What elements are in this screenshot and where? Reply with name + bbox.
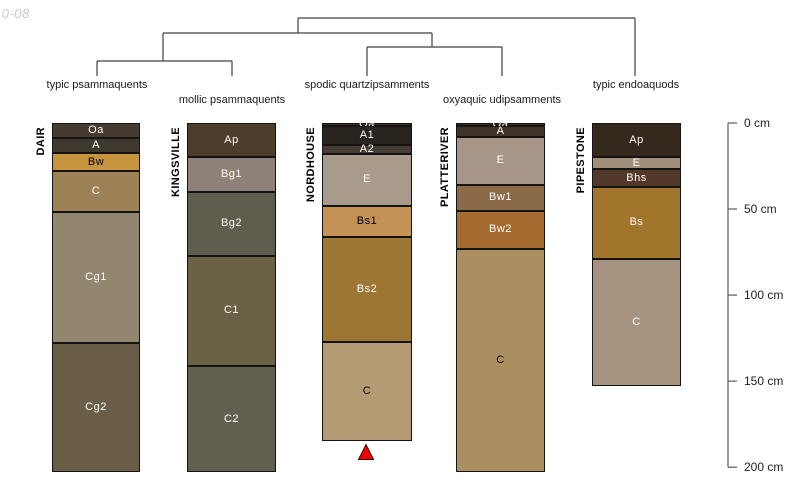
horizon-band-oa: Oa [52,123,140,138]
horizon-band-bs: Bs [592,187,681,259]
horizon-band-cg1: Cg1 [52,212,140,343]
classification-label: typic psammaquents [47,80,148,91]
horizon-label: C2 [224,414,239,425]
profile-title-text: KINGSVILLE [170,127,182,197]
horizon-label: Bhs [626,173,646,184]
horizon-label: Bw2 [489,224,512,235]
axis-tick-label: 150 cm [744,375,783,387]
horizon-band-c: C [322,342,412,442]
classification-label: typic endoaquods [593,80,679,91]
horizon-label: Cg2 [85,402,107,413]
horizon-band-a: A [52,138,140,153]
horizon-label: A [92,140,100,151]
horizon-label: Oa [88,125,104,136]
horizon-label: E [497,155,505,166]
profile-title-text: DAIR [35,127,47,156]
horizon-band-bw1: Bw1 [456,185,545,211]
horizon-label: Bg1 [221,169,242,180]
horizon-band-e: E [592,157,681,169]
horizon-band-bw: Bw [52,153,140,171]
axis-tick-label: 0 cm [744,117,770,129]
classification-label: spodic quartzipsamments [305,80,430,91]
horizon-label: C [92,186,100,197]
horizon-band-e: E [322,154,412,206]
profile-platteriver: OaAEBw1Bw2C [456,123,545,472]
classification-label: oxyaquic udipsamments [443,95,561,106]
horizon-label: C [496,355,504,366]
horizon-band-bg1: Bg1 [187,157,276,191]
horizon-band-c: C [592,259,681,386]
horizon-label: A [497,126,505,137]
horizon-band-bhs: Bhs [592,169,681,186]
horizon-label: C [632,317,640,328]
horizon-label: Cg1 [85,272,107,283]
horizon-label: Bg2 [221,218,242,229]
marker-triangle-icon [359,445,374,460]
figure-canvas: 10-08 typic psammaquentsmollic psammaque… [0,0,800,500]
horizon-label: Bw [88,157,104,168]
horizon-label: Ap [224,135,238,146]
axis-tick-label: 50 cm [744,203,777,215]
horizon-band-a2: A2 [322,145,412,154]
classification-label: mollic psammaquents [179,95,285,106]
horizon-band-c2: C2 [187,366,276,473]
horizon-label: A1 [360,130,374,141]
horizon-label: E [633,158,641,169]
horizon-band-c: C [52,171,140,212]
horizon-label: E [363,174,371,185]
horizon-band-bg2: Bg2 [187,192,276,256]
horizon-band-e: E [456,137,545,185]
horizon-label: C [363,386,371,397]
horizon-label: Bw1 [489,192,512,203]
horizon-band-bs1: Bs1 [322,206,412,237]
axis-tick-label: 200 cm [744,461,783,473]
profile-kingsville: ApBg1Bg2C1C2 [187,123,276,472]
horizon-band-cg2: Cg2 [52,343,140,472]
horizon-band-ap: Ap [187,123,276,157]
horizon-band-a: A [456,126,545,136]
horizon-label: C1 [224,305,239,316]
horizon-band-c: C [456,249,545,473]
profile-title-text: PIPESTONE [575,127,587,193]
profile-pipestone: ApEBhsBsC [592,123,681,386]
axis-tick-label: 100 cm [744,289,783,301]
horizon-band-bw2: Bw2 [456,211,545,249]
horizon-label: Ap [629,135,643,146]
horizon-band-bs2: Bs2 [322,237,412,342]
profile-title-text: PLATTERIVER [439,127,451,207]
profile-nordhouse: OaA1A2EBs1Bs2C [322,123,412,441]
horizon-band-c1: C1 [187,256,276,366]
profile-title-text: NORDHOUSE [305,127,317,202]
horizon-label: Bs2 [357,284,377,295]
horizon-label: Bs1 [357,216,377,227]
horizon-band-ap: Ap [592,123,681,157]
horizon-label: Bs [630,217,644,228]
profile-dair: OaABwCCg1Cg2 [52,123,140,472]
